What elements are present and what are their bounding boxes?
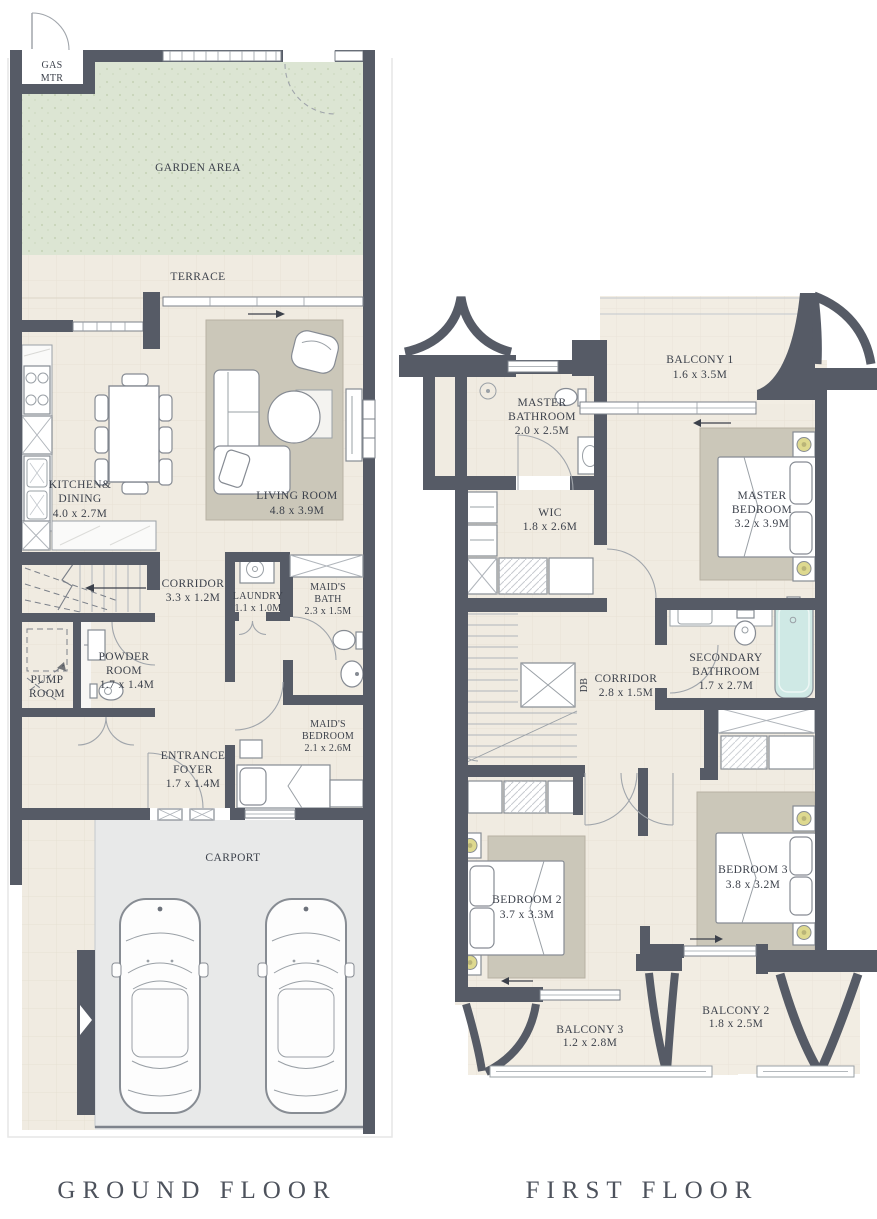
bedroom3-label: BEDROOM 3 (718, 864, 788, 876)
arch-ornament-left-icon (405, 297, 511, 352)
svg-text:BATHROOM: BATHROOM (692, 666, 760, 678)
nightstand-lamp-icon (793, 920, 815, 945)
tv-console-icon (346, 389, 362, 461)
living-label: LIVING ROOM (256, 490, 337, 502)
master-bedroom-label: MASTER (737, 490, 786, 502)
laundry-label: LAUNDRY (233, 591, 283, 602)
wic-dims: 1.8 x 2.6M (523, 521, 577, 533)
balcony3-dims: 1.2 x 2.8M (563, 1037, 617, 1049)
svg-text:BATHROOM: BATHROOM (508, 411, 576, 423)
maids-bath-dims: 2.3 x 1.5M (305, 606, 352, 617)
db-label: DB (579, 678, 590, 693)
balcony2-label: BALCONY 2 (702, 1005, 769, 1017)
svg-text:BEDROOM: BEDROOM (302, 731, 354, 742)
first-corridor-dims: 2.8 x 1.5M (599, 687, 653, 699)
maids-wardrobe-icon (330, 780, 363, 807)
stove-icon (24, 366, 50, 414)
nightstand-lamp-icon (793, 432, 815, 457)
floorplan-svg: GAS MTR GARDEN AREA TERRACE KITCHEN& DIN… (0, 0, 877, 1219)
first-floor-plan: DB (399, 293, 877, 1077)
maids-bedroom-dims: 2.1 x 2.6M (305, 743, 352, 754)
ground-floor-title: GROUND FLOOR (57, 1177, 336, 1204)
kitchen-sink-icon (24, 456, 50, 522)
svg-text:BEDROOM: BEDROOM (732, 504, 792, 516)
secondary-bath-dims: 1.7 x 2.7M (699, 680, 753, 692)
maids-sink-icon (341, 661, 363, 687)
first-corridor-label: CORRIDOR (595, 673, 658, 685)
svg-text:DINING: DINING (58, 493, 101, 505)
corridor-dims: 3.3 x 1.2M (166, 592, 220, 604)
balcony3-label: BALCONY 3 (556, 1024, 623, 1036)
gas-mtr-label2: MTR (41, 73, 64, 84)
hall-storage (718, 708, 815, 769)
bedroom2-label: BEDROOM 2 (492, 894, 562, 906)
bedroom3-dims: 3.8 x 3.2M (726, 879, 780, 891)
arch-ornament-right-icon (814, 296, 871, 364)
maids-bath-label: MAID'S (310, 582, 346, 593)
balcony1-dims: 1.6 x 3.5M (673, 369, 727, 381)
bathtub-icon (775, 600, 813, 698)
floorplan-page: GAS MTR GARDEN AREA TERRACE KITCHEN& DIN… (0, 0, 877, 1219)
car-1-icon (112, 899, 208, 1113)
foyer-dims: 1.7 x 1.4M (166, 778, 220, 790)
kitchen-label: KITCHEN& (49, 479, 112, 491)
balcony2-dims: 1.8 x 2.5M (709, 1018, 763, 1030)
foyer-label: ENTRANCE (161, 750, 226, 762)
garden-label: GARDEN AREA (155, 162, 241, 174)
carport-label: CARPORT (205, 852, 260, 864)
svg-text:ROOM: ROOM (29, 688, 65, 700)
ground-floor-plan: GAS MTR GARDEN AREA TERRACE KITCHEN& DIN… (8, 13, 392, 1137)
gas-mtr-label: GAS (42, 60, 63, 71)
powder-room-label: POWDER (99, 651, 150, 663)
first-floor-title: FIRST FLOOR (526, 1177, 759, 1204)
coffee-table-icon (268, 391, 320, 443)
bedroom2-dims: 3.7 x 3.3M (500, 909, 554, 921)
maids-bedroom-label: MAID'S (310, 719, 346, 730)
master-bedroom-dims: 3.2 x 3.9M (735, 518, 789, 530)
maids-toilet-icon (333, 631, 355, 650)
laundry-dims: 1.1 x 1.0M (235, 603, 282, 614)
kitchen-dims: 4.0 x 2.7M (53, 508, 107, 520)
bedroom2-furniture (459, 781, 576, 975)
powder-room-dims: 1.7 x 1.4M (100, 679, 154, 691)
living-dims: 4.8 x 3.9M (270, 505, 324, 517)
nightstand-lamp-icon (793, 806, 815, 831)
balcony1-label: BALCONY 1 (666, 354, 733, 366)
svg-text:FOYER: FOYER (173, 764, 213, 776)
svg-text:BATH: BATH (314, 594, 341, 605)
nightstand-lamp-icon (793, 556, 815, 581)
terrace-label: TERRACE (170, 271, 225, 283)
secondary-bath-label: SECONDARY (689, 652, 763, 664)
pump-room-label: PUMP (31, 674, 64, 686)
corridor-label: CORRIDOR (162, 578, 225, 590)
svg-text:ROOM: ROOM (106, 665, 142, 677)
master-bath-dims: 2.0 x 2.5M (515, 425, 569, 437)
master-bath-label: MASTER (517, 397, 566, 409)
wic-label: WIC (538, 507, 562, 519)
car-2-icon (258, 899, 354, 1113)
